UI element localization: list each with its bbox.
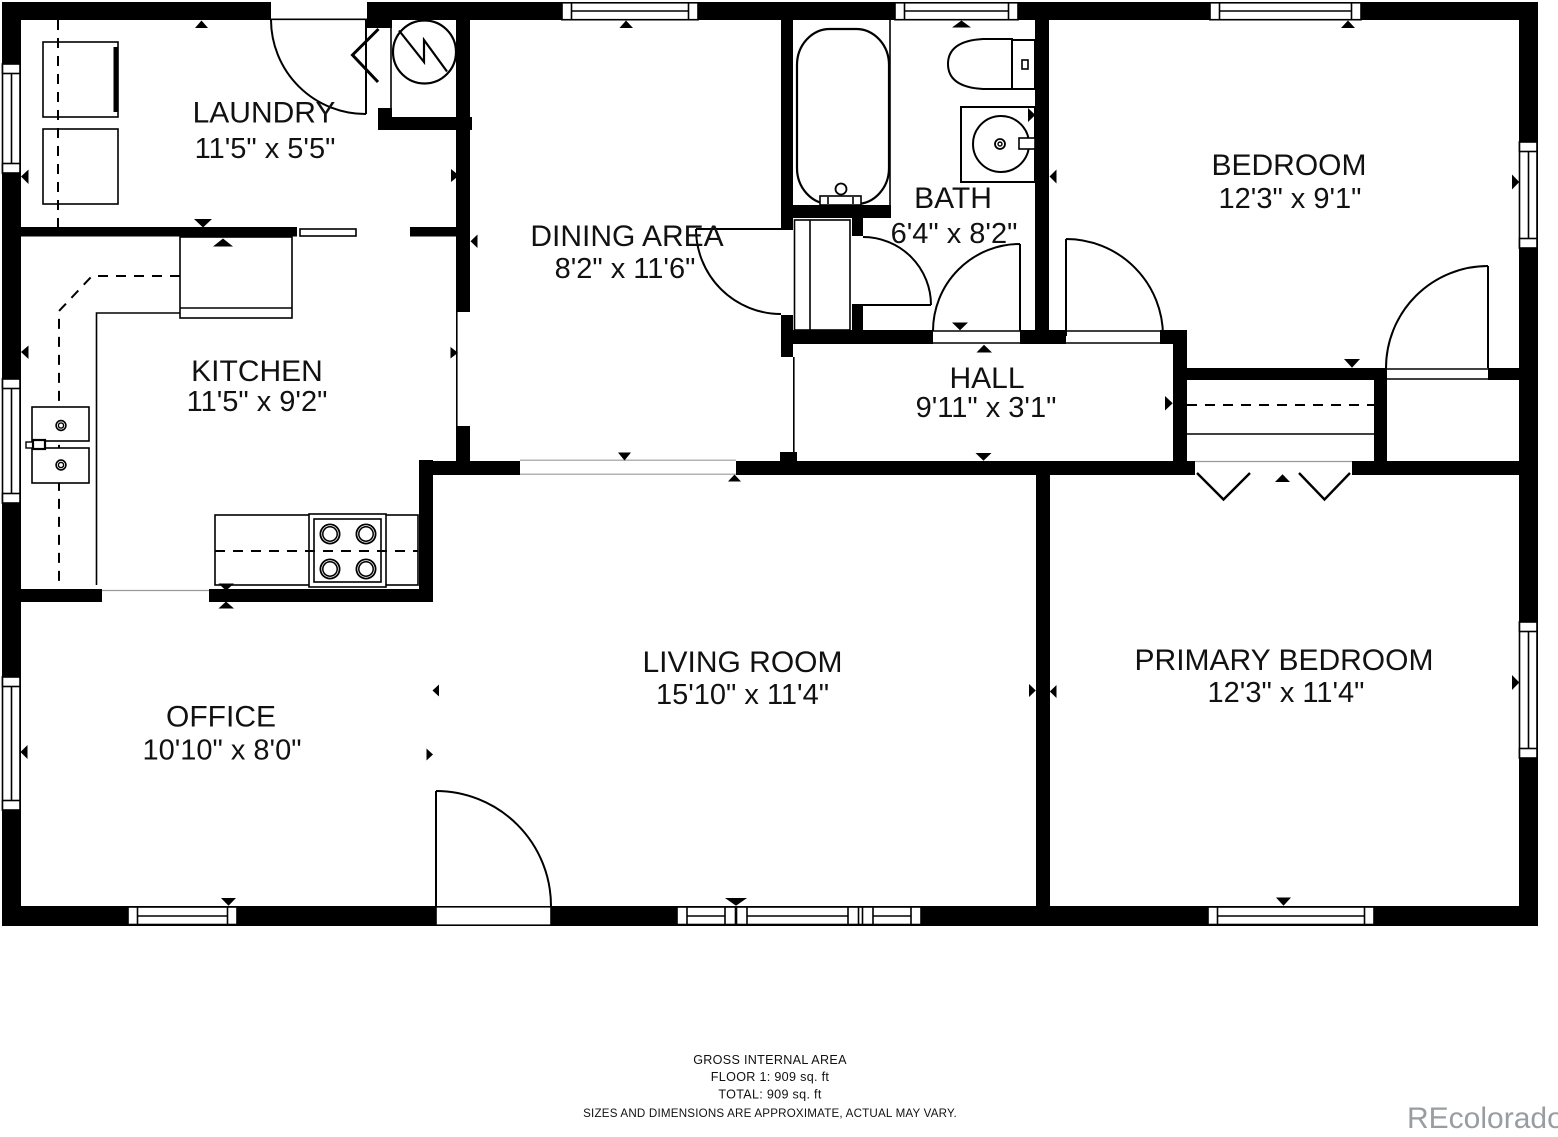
svg-text:6'4" x 8'2": 6'4" x 8'2" — [891, 218, 1018, 250]
svg-text:OFFICE: OFFICE — [166, 701, 276, 734]
svg-text:BEDROOM: BEDROOM — [1211, 149, 1366, 182]
svg-text:12'3" x 9'1": 12'3" x 9'1" — [1219, 183, 1362, 215]
svg-text:TOTAL: 909 sq. ft: TOTAL: 909 sq. ft — [718, 1088, 822, 1102]
svg-text:10'10" x 8'0": 10'10" x 8'0" — [142, 735, 301, 767]
svg-text:KITCHEN: KITCHEN — [191, 355, 323, 388]
svg-text:LAUNDRY: LAUNDRY — [193, 97, 336, 130]
svg-text:SIZES AND DIMENSIONS ARE APPRO: SIZES AND DIMENSIONS ARE APPROXIMATE, AC… — [583, 1107, 957, 1120]
svg-text:REcolorado: REcolorado — [1407, 1102, 1558, 1135]
svg-text:11'5" x 9'2": 11'5" x 9'2" — [187, 386, 328, 418]
svg-text:FLOOR 1: 909 sq. ft: FLOOR 1: 909 sq. ft — [711, 1070, 830, 1084]
svg-text:9'11" x 3'1": 9'11" x 3'1" — [916, 392, 1057, 424]
svg-text:DINING AREA: DINING AREA — [530, 220, 723, 253]
svg-text:8'2" x 11'6": 8'2" x 11'6" — [555, 253, 696, 285]
svg-text:BATH: BATH — [914, 182, 992, 215]
svg-text:HALL: HALL — [949, 362, 1024, 395]
svg-text:PRIMARY BEDROOM: PRIMARY BEDROOM — [1135, 644, 1434, 677]
svg-text:11'5" x 5'5": 11'5" x 5'5" — [195, 133, 336, 165]
svg-text:LIVING ROOM: LIVING ROOM — [642, 646, 842, 679]
svg-text:15'10" x 11'4": 15'10" x 11'4" — [656, 679, 829, 711]
svg-text:12'3" x 11'4": 12'3" x 11'4" — [1208, 677, 1365, 709]
svg-text:GROSS INTERNAL AREA: GROSS INTERNAL AREA — [693, 1053, 847, 1067]
